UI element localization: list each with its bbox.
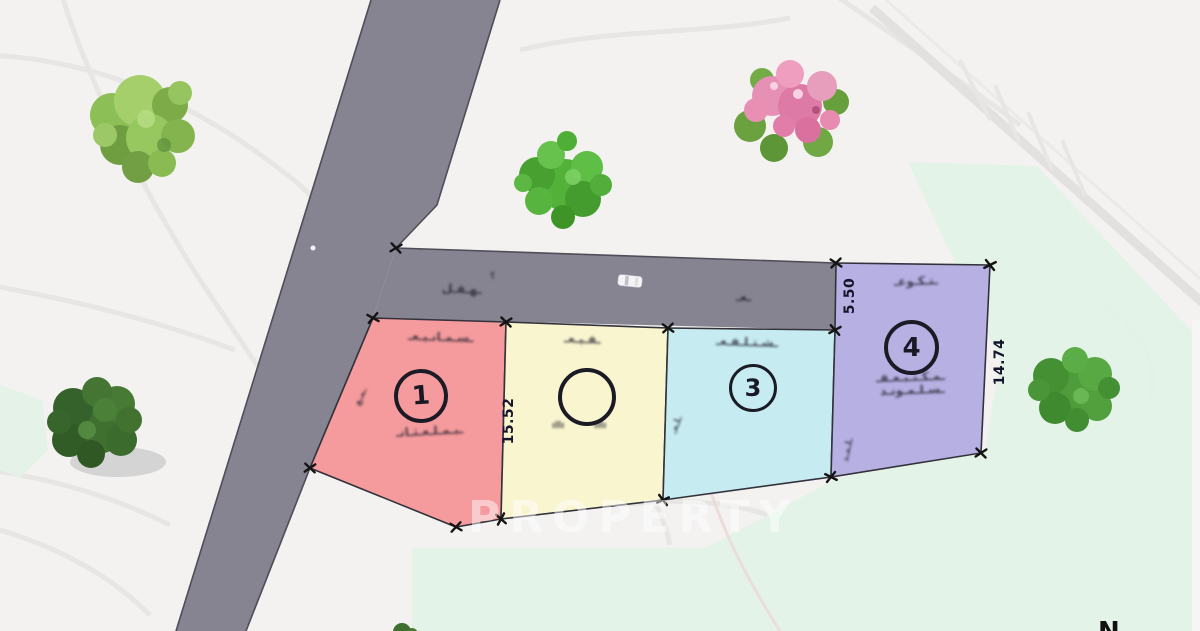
right-edge-strip [1192,320,1200,631]
site-plan-canvas: PROPERTY 1 3 4 15.52 5.50 14.74 ـسـمـانـ… [0,0,1200,631]
plot-3-polygon [663,328,835,500]
road-paint-dot [311,246,316,251]
car-icon [617,274,642,287]
plot-4-polygon [831,263,990,477]
plot-2-polygon [501,322,668,519]
site-plan-svg [0,0,1200,631]
